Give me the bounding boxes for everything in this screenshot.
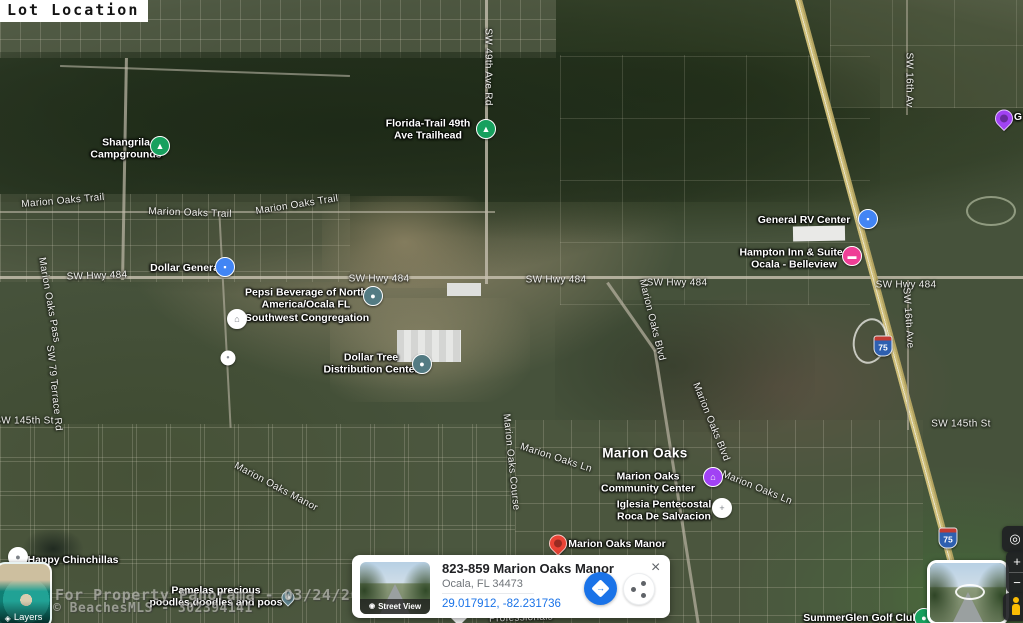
my-location-icon: ◎ xyxy=(1009,531,1020,547)
poi-label[interactable]: Dollar General xyxy=(150,262,222,274)
road-label: Marion Oaks Trail xyxy=(255,193,339,217)
interstate-shield: 75 xyxy=(874,336,893,357)
road-label: Marion Oaks Blvd xyxy=(637,278,668,362)
road-label: SW Hwy 484 xyxy=(647,278,708,289)
coordinates-link[interactable]: 29.017912, -82.231736 xyxy=(442,598,561,610)
factory-icon[interactable]: ● xyxy=(363,286,383,306)
campground-icon-glyph: ▲ xyxy=(156,142,165,151)
road-label: Marion Oaks Ln xyxy=(720,469,793,507)
road-label: SW Hwy 484 xyxy=(66,269,127,282)
poi-label[interactable]: General RV Center xyxy=(758,214,851,226)
campground-icon[interactable]: ▲ xyxy=(150,136,170,156)
trailhead-icon[interactable]: ▲ xyxy=(476,119,496,139)
hotel-bed-icon-glyph: ▬ xyxy=(848,252,857,261)
town-label: Marion Oaks xyxy=(602,446,687,461)
road-label: Marion Oaks Pass xyxy=(36,256,62,343)
zoom-in-button[interactable]: + xyxy=(1006,551,1023,572)
poi-label[interactable]: Marion Oaks Community Center xyxy=(601,471,695,496)
street-view-label: Street View xyxy=(378,602,421,611)
road-label: Marion Oaks Course xyxy=(500,413,521,511)
poi-label[interactable]: G xyxy=(1014,111,1022,123)
poi-dot-icon-glyph: • xyxy=(226,354,229,363)
street-view-preview-photo xyxy=(930,563,1006,622)
road-label: Marion Oaks Trail xyxy=(21,192,105,210)
road-label: SW Hwy 484 xyxy=(526,275,587,286)
layers-icon: ◈ xyxy=(5,614,11,623)
road-label: Marion Oaks Blvd xyxy=(690,381,732,463)
poi-label[interactable]: SummerGlen Golf Club xyxy=(803,612,919,623)
map-label-layer: SW 49th Ave RdMarion Oaks TrailMarion Oa… xyxy=(0,0,1023,623)
poi-label[interactable]: Pepsi Beverage of North America/Ocala FL xyxy=(245,287,367,312)
shopping-bag-icon-glyph: ▪ xyxy=(223,263,226,272)
shopping-bag-icon-glyph: ▪ xyxy=(866,215,869,224)
share-icon xyxy=(631,587,636,592)
golf-icon-glyph: ● xyxy=(921,614,926,623)
road-label: SW 145th St xyxy=(931,419,990,430)
road-label: Marion Oaks Trail xyxy=(148,206,232,220)
trailhead-icon-glyph: ▲ xyxy=(482,125,491,134)
place-info-card: ◉ Street View 823-859 Marion Oaks Manor … xyxy=(352,555,670,618)
warehouse-icon-glyph: ● xyxy=(419,360,424,369)
road-label: SW 49th Ave Rd xyxy=(483,28,494,105)
map-canvas[interactable]: SW 49th Ave RdMarion Oaks TrailMarion Oa… xyxy=(0,0,1023,623)
my-location-button[interactable]: ◎ xyxy=(1002,526,1023,552)
layers-button[interactable]: ◈ Layers xyxy=(0,562,52,623)
road-label: SW 16th Av xyxy=(904,52,915,107)
church-cross-icon-glyph: + xyxy=(719,504,724,513)
church-cross-icon[interactable]: + xyxy=(712,498,732,518)
road-label: SW 16th Ave xyxy=(900,287,915,349)
pegman-button[interactable] xyxy=(1003,593,1023,621)
interstate-shield: 75 xyxy=(939,528,958,549)
directions-icon: → xyxy=(591,579,609,597)
directions-button[interactable]: → xyxy=(584,572,617,605)
community-center-icon[interactable]: ⌂ xyxy=(703,467,723,487)
shopping-bag-icon[interactable]: ▪ xyxy=(215,257,235,277)
church-icon-glyph: ⌂ xyxy=(234,315,239,324)
road-label: Marion Oaks Manor xyxy=(232,460,319,513)
pegman-icon xyxy=(1011,597,1021,616)
location-pin-icon[interactable] xyxy=(545,531,570,556)
street-view-badge: ◉ Street View xyxy=(360,599,430,614)
person-pin-icon[interactable] xyxy=(991,106,1016,131)
street-view-icon: ◉ xyxy=(369,603,375,610)
poi-label[interactable]: Pamelas precious poodles,doodles and poo… xyxy=(149,585,282,610)
hotel-bed-icon[interactable]: ▬ xyxy=(842,246,862,266)
road-label: SW Hwy 484 xyxy=(876,280,937,291)
zoom-out-button[interactable]: − xyxy=(1006,573,1023,594)
place-title: 823-859 Marion Oaks Manor xyxy=(442,561,614,576)
close-icon[interactable]: × xyxy=(648,557,663,579)
lot-location-badge: Lot Location xyxy=(0,0,148,22)
poi-label[interactable]: Florida-Trail 49th Ave Trailhead xyxy=(386,118,471,143)
street-view-thumbnail[interactable]: ◉ Street View xyxy=(360,562,430,614)
road-label: Marion Oaks Ln xyxy=(519,441,594,475)
card-divider xyxy=(442,593,534,594)
road-label: SW 79 Terrace Rd xyxy=(44,344,64,431)
community-center-icon-glyph: ⌂ xyxy=(710,473,715,482)
church-icon[interactable]: ⌂ xyxy=(227,309,247,329)
poi-label[interactable]: Dollar Tree Distribution Center xyxy=(323,352,418,377)
poi-label[interactable]: Marion Oaks Manor xyxy=(568,538,665,550)
factory-icon-glyph: ● xyxy=(370,292,375,301)
poi-label[interactable]: Southwest Congregation xyxy=(245,312,369,324)
zoom-control: + − xyxy=(1006,551,1023,593)
poi-dot-icon[interactable]: • xyxy=(221,351,236,366)
street-view-preview[interactable] xyxy=(927,560,1009,623)
road-label: SW Hwy 484 xyxy=(349,274,410,285)
poi-label[interactable]: Hampton Inn & Suites Ocala - Belleview xyxy=(739,247,848,272)
pets-icon-glyph: ● xyxy=(15,553,20,562)
place-subtitle: Ocala, FL 34473 xyxy=(442,578,523,590)
poi-label[interactable]: Iglesia Pentecostal Roca De Salvacion xyxy=(617,499,712,524)
shopping-bag-icon[interactable]: ▪ xyxy=(858,209,878,229)
layers-label: Layers xyxy=(14,612,43,623)
warehouse-icon[interactable]: ● xyxy=(412,354,432,374)
layers-strip: ◈ Layers xyxy=(0,601,50,623)
road-label: SW 145th St xyxy=(0,416,54,427)
